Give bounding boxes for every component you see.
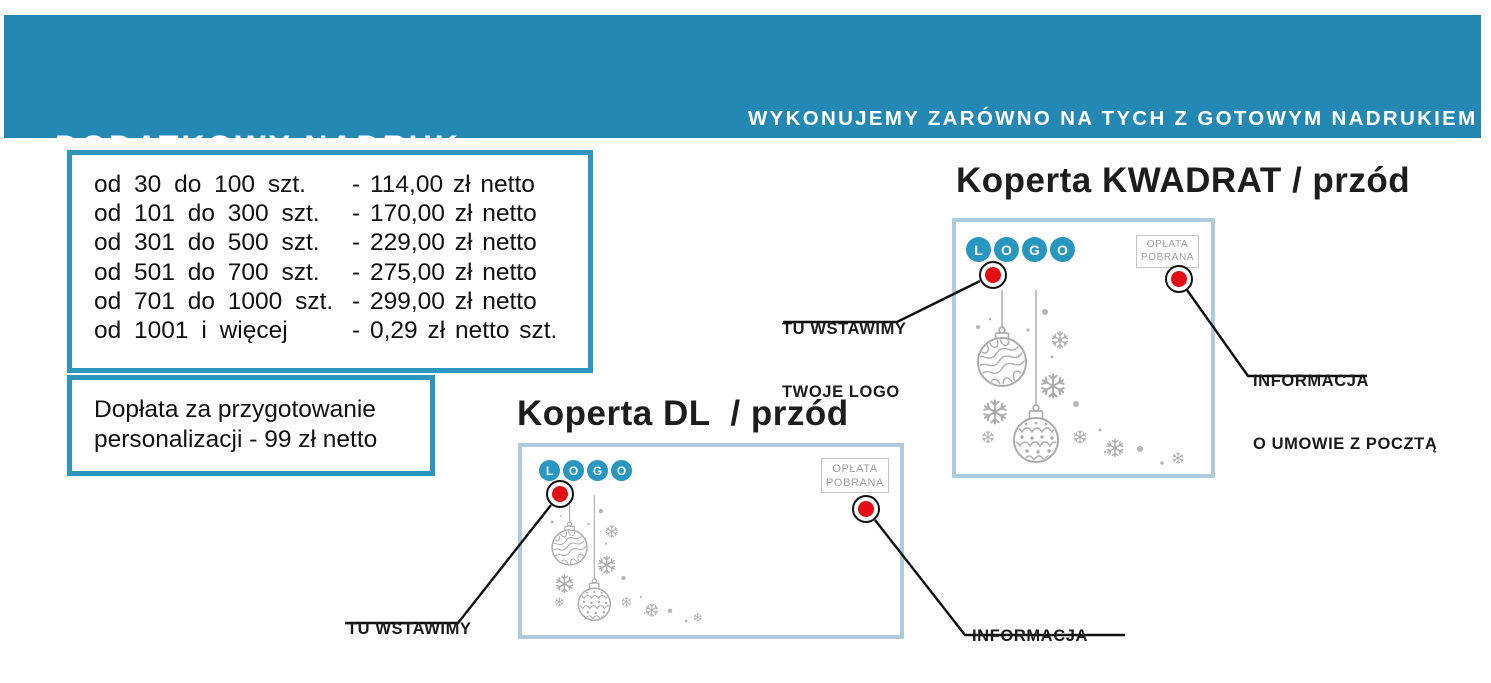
callout-line-1: INFORMACJA	[1253, 371, 1437, 392]
price-value: - 0,29 zł netto szt.	[352, 316, 557, 345]
dl-logo-marker	[546, 480, 574, 508]
kwadrat-postal-marker	[1165, 265, 1193, 293]
logo-circles-badge: L O G O	[966, 237, 1075, 262]
red-dot-marker	[552, 486, 568, 502]
postage-line-1: OPŁATA	[1147, 239, 1189, 252]
callout-line-1: INFORMACJA	[972, 626, 1156, 647]
price-quantity-range: od 101 do 300 szt.	[94, 199, 352, 228]
christmas-ornaments-graphic	[970, 290, 1200, 485]
postage-line-1: OPŁATA	[832, 462, 877, 476]
logo-circle-letter: O	[994, 237, 1019, 262]
dl-envelope-mockup: L O G O OPŁATA POBRANA	[518, 443, 904, 639]
price-row: od 1001 i więcej - 0,29 zł netto szt.	[94, 316, 588, 345]
christmas-ornaments-graphic	[546, 495, 714, 637]
callout-line-1: TU WSTAWIMY	[782, 319, 907, 340]
postage-line-2: POBRANA	[826, 476, 884, 490]
price-quantity-range: od 30 do 100 szt.	[94, 170, 352, 199]
price-list-box: od 30 do 100 szt. - 114,00 zł netto od 1…	[67, 150, 593, 373]
kwadrat-logo-callout-label: TU WSTAWIMY TWOJE LOGO	[782, 277, 907, 445]
logo-circle-letter: G	[587, 460, 608, 481]
red-dot-marker	[858, 501, 874, 517]
price-quantity-range: od 501 do 700 szt.	[94, 258, 352, 287]
callout-line-1: TU WSTAWIMY	[347, 619, 472, 640]
price-row: od 701 do 1000 szt. - 299,00 zł netto	[94, 287, 588, 316]
price-value: - 299,00 zł netto	[352, 287, 537, 316]
logo-circles-badge: L O G O	[539, 460, 632, 481]
postage-paid-box: OPŁATA POBRANA	[821, 458, 889, 493]
logo-circle-letter: O	[611, 460, 632, 481]
price-quantity-range: od 301 do 500 szt.	[94, 228, 352, 257]
callout-line-2: O UMOWIE Z POCZTĄ	[1253, 434, 1437, 455]
postage-paid-box: OPŁATA POBRANA	[1136, 235, 1199, 268]
price-row: od 30 do 100 szt. - 114,00 zł netto	[94, 170, 588, 199]
postage-line-2: POBRANA	[1141, 252, 1194, 265]
kwadrat-postal-callout-label: INFORMACJA O UMOWIE Z POCZTĄ	[1253, 329, 1437, 497]
dl-postal-callout-label: INFORMACJA O UMOWIE Z POCZTĄ	[972, 584, 1156, 683]
kwadrat-envelope-mockup: L O G O OPŁATA POBRANA	[952, 218, 1215, 478]
price-value: - 229,00 zł netto	[352, 228, 537, 257]
surcharge-note-box: Dopłata za przygotowanie personalizacji …	[67, 375, 435, 476]
logo-circle-letter: O	[563, 460, 584, 481]
kwadrat-section-title: Koperta KWADRAT / przód	[956, 161, 1410, 201]
callout-line-2: TWOJE LOGO	[782, 382, 907, 403]
logo-circle-letter: G	[1022, 237, 1047, 262]
red-dot-marker	[1171, 271, 1187, 287]
price-row: od 501 do 700 szt. - 275,00 zł netto	[94, 258, 588, 287]
dl-logo-callout-label: TU WSTAWIMY TWOJE LOGO	[347, 577, 472, 683]
price-row: od 101 do 300 szt. - 170,00 zł netto	[94, 199, 588, 228]
logo-circle-letter: L	[539, 460, 560, 481]
flyer-canvas: DODATKOWY NADRUK LOGO NA KOPERTACH WYKON…	[0, 0, 1491, 683]
surcharge-line-1: Dopłata za przygotowanie	[94, 395, 430, 425]
surcharge-line-2: personalizacji - 99 zł netto	[94, 425, 430, 455]
header-band: DODATKOWY NADRUK LOGO NA KOPERTACH WYKON…	[4, 15, 1481, 138]
dl-postal-marker	[852, 495, 880, 523]
kwadrat-logo-marker	[979, 261, 1007, 289]
logo-circle-letter: O	[1050, 237, 1075, 262]
price-value: - 170,00 zł netto	[352, 199, 537, 228]
price-quantity-range: od 701 do 1000 szt.	[94, 287, 352, 316]
page-subtitle-line-1: WYKONUJEMY ZARÓWNO NA TYCH Z GOTOWYM NAD…	[748, 103, 1478, 135]
logo-circle-letter: L	[966, 237, 991, 262]
price-value: - 275,00 zł netto	[352, 258, 537, 287]
price-value: - 114,00 zł netto	[352, 170, 535, 199]
price-row: od 301 do 500 szt. - 229,00 zł netto	[94, 228, 588, 257]
price-quantity-range: od 1001 i więcej	[94, 316, 352, 345]
red-dot-marker	[985, 267, 1001, 283]
